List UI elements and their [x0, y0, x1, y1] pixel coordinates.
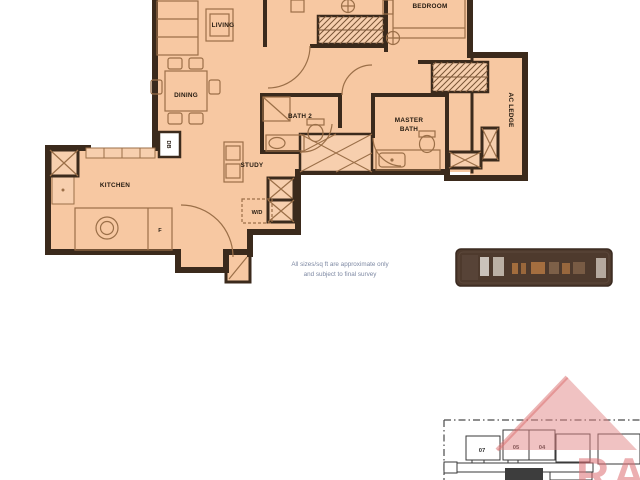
- disclaimer-text: All sizes/sq ft are approximate only and…: [291, 261, 389, 278]
- ac-ledge-label: AC LEDGE: [507, 92, 514, 128]
- kitchen-label: KITCHEN: [100, 182, 130, 189]
- db-label: DB: [165, 140, 171, 148]
- shaft-masterbath-icon: [449, 152, 481, 168]
- watermark-letters: RA: [576, 448, 640, 480]
- disclaimer-line1: All sizes/sq ft are approximate only: [291, 261, 389, 268]
- key-plan-highlighted-unit: [505, 468, 543, 480]
- bath2-label: BATH 2: [288, 113, 312, 120]
- master-bath-label-line1: MASTER: [395, 117, 424, 124]
- shaft-ac-ledge-icon: [482, 128, 498, 160]
- wd-label: W/D: [252, 210, 263, 216]
- living-label: LIVING: [212, 22, 235, 29]
- shaft-kitchen-icon: [50, 150, 78, 176]
- floor-fill: [48, 0, 525, 282]
- bedroom-label: BEDROOM: [412, 3, 447, 10]
- key-plan-unit-07-label: 07: [479, 448, 485, 454]
- watermark-roof-icon: [497, 377, 637, 450]
- fridge-label: F: [158, 228, 162, 234]
- disclaimer-line2: and subject to final survey: [304, 271, 378, 278]
- dining-label: DINING: [174, 92, 198, 99]
- master-bath-label-line2: BATH: [400, 126, 418, 133]
- shaft-foyer-upper-icon: [268, 178, 294, 200]
- floor-plan-page: LIVING DINING KITCHEN BEDROOM BATH 2 MAS…: [0, 0, 640, 480]
- logo-stamp: [456, 249, 612, 286]
- study-label: STUDY: [241, 162, 264, 169]
- floor-plan-image: LIVING DINING KITCHEN BEDROOM BATH 2 MAS…: [0, 0, 640, 480]
